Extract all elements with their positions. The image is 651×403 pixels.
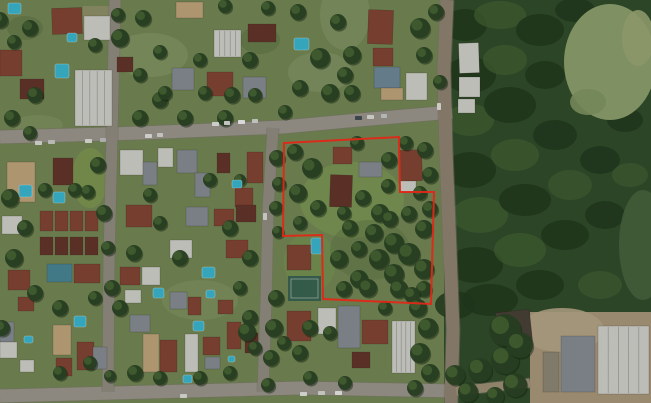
satellite-map-view[interactable] xyxy=(0,0,651,403)
satellite-image xyxy=(0,0,651,403)
image-grain xyxy=(0,0,651,403)
